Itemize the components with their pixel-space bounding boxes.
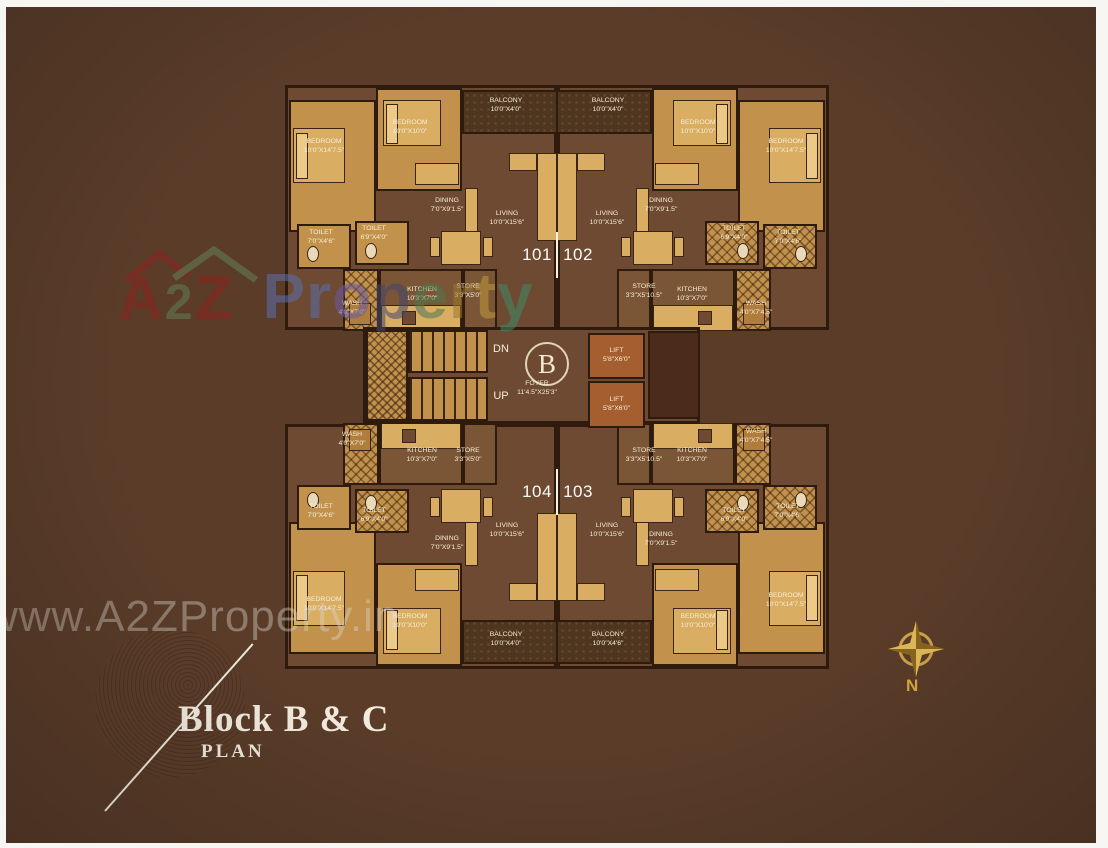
tv-unit-icon (465, 520, 478, 566)
page-border (1096, 0, 1108, 848)
lift-label: LIFT5'8"X6'0" (603, 396, 630, 414)
unit-number-102: 102 (563, 245, 593, 265)
pillow-icon (716, 104, 728, 144)
chair-icon (674, 237, 684, 257)
unit-number-104: 104 (522, 482, 552, 502)
stairs-down-label: DN (493, 343, 509, 355)
sofa-icon (537, 513, 557, 601)
room-label-balcony: BALCONY10'0"X4'0" (490, 631, 522, 649)
page-border (0, 0, 6, 848)
room-label-living: LIVING10'0"X15'6" (590, 210, 625, 228)
wardrobe-icon (655, 569, 699, 591)
dining-table-icon (633, 231, 673, 265)
wardrobe-icon (415, 163, 459, 185)
room-label-store: STORE3'3"X5'10.5" (626, 447, 663, 465)
stove-icon (698, 429, 712, 443)
room-label-toilet: TOILET6'9"X4'0" (360, 507, 387, 525)
room-label-kitchen: KITCHEN10'3"X7'0" (677, 286, 708, 304)
room-label-wash: WASH4'0"X7'4.5" (740, 428, 773, 446)
room-label-store: STORE3'3"X5'10.5" (626, 283, 663, 301)
room-label-living: LIVING10'0"X15'6" (590, 522, 625, 540)
room-label-dining: DINING7'0"X9'1.5" (431, 197, 464, 215)
entry-divider (556, 469, 558, 515)
room-label-balcony: BALCONY10'0"X4'6" (592, 631, 624, 649)
room-label-dining: DINING7'0"X9'1.5" (431, 535, 464, 553)
room-label-living: LIVING10'0"X15'6" (490, 522, 525, 540)
page-title: Block B & C (178, 698, 389, 741)
block-letter: B (538, 349, 556, 380)
room-label-toilet: TOILET7'0"X4'6" (307, 229, 334, 247)
page-border (0, 843, 1108, 848)
stove-icon (402, 429, 416, 443)
room-label-toilet: TOILET6'9"X4'0" (360, 225, 387, 243)
room-label-balcony: BALCONY10'0"X4'0" (592, 97, 624, 115)
chair-icon (483, 497, 493, 517)
lift-label: LIFT5'8"X6'0" (603, 347, 630, 365)
foyer-label: FOYER11'4.5"X25'3" (517, 380, 557, 398)
staircase-flight (408, 377, 488, 421)
site-url-watermark: www.A2ZProperty.in (0, 592, 399, 642)
room-label-bedroom: BEDROOM10'0"X10'0" (680, 613, 715, 631)
room-label-bedroom: BEDROOM10'0"X14'7.5" (304, 138, 344, 156)
a2zproperty-logo-watermark: A2Z Property (118, 246, 534, 330)
room-label-dining: DINING7'0"X9'1.5" (645, 197, 678, 215)
wardrobe-icon (655, 163, 699, 185)
chair-icon (674, 497, 684, 517)
room-label-toilet: TOILET6'9"X4'0" (720, 225, 747, 243)
chair-icon (430, 497, 440, 517)
room-label-bedroom: BEDROOM10'0"X14'7.5" (766, 138, 806, 156)
sofa-icon (509, 583, 537, 601)
duct-block (648, 331, 700, 419)
sofa-icon (537, 153, 557, 241)
sofa-icon (577, 583, 605, 601)
wardrobe-icon (415, 569, 459, 591)
room-label-store: STORE3'3"X5'0" (454, 447, 481, 465)
chair-icon (621, 237, 631, 257)
lift-shaft: LIFT5'8"X6'0" (588, 381, 645, 428)
sofa-icon (557, 513, 577, 601)
compass-icon (885, 618, 947, 680)
dining-table-icon (633, 489, 673, 523)
tv-unit-icon (465, 188, 478, 234)
page-subtitle: PLAN (201, 741, 265, 763)
pillow-icon (716, 610, 728, 650)
staircase-flight (408, 330, 488, 373)
room-label-wash: WASH4'0"X7'4.5" (740, 300, 773, 318)
chair-icon (621, 497, 631, 517)
kitchen-counter-icon (653, 423, 733, 449)
room-label-bedroom: BEDROOM10'0"X10'0" (392, 119, 427, 137)
logo-a2z-text: A2Z (118, 268, 234, 330)
stair-lobby-pattern (366, 330, 408, 421)
sofa-icon (577, 153, 605, 171)
lift-shaft: LIFT5'8"X6'0" (588, 333, 645, 379)
pillow-icon (806, 133, 818, 179)
floor-plan-page: LIFT5'8"X6'0" LIFT5'8"X6'0" B DN UP FOYE… (0, 0, 1108, 848)
room-label-dining: DINING7'0"X9'1.5" (645, 531, 678, 549)
pillow-icon (806, 575, 818, 621)
logo-property-text: Property (262, 264, 533, 328)
page-border (0, 0, 1108, 7)
room-label-kitchen: KITCHEN10'3"X7'0" (407, 447, 438, 465)
stairs-up-label: UP (493, 390, 508, 402)
room-label-toilet: TOILET7'0"X4'6" (774, 503, 801, 521)
room-label-bedroom: BEDROOM10'0"X14'7.5" (766, 592, 806, 610)
room-label-toilet: TOILET7'0"X4'6" (774, 229, 801, 247)
unit-number-103: 103 (563, 482, 593, 502)
room-label-wash: WASH4'0"X7'0" (338, 431, 365, 449)
room-label-toilet: TOILET6'9"X4'0" (720, 507, 747, 525)
room-label-bedroom: BEDROOM10'0"X10'0" (680, 119, 715, 137)
toilet-fixture-icon (795, 246, 807, 262)
room-label-toilet: TOILET7'0"X4'6" (307, 503, 334, 521)
room-label-living: LIVING10'0"X15'6" (490, 210, 525, 228)
entry-divider (556, 232, 558, 278)
dining-table-icon (441, 489, 481, 523)
north-label: N (906, 676, 918, 696)
kitchen-counter-icon (381, 423, 461, 449)
toilet-fixture-icon (737, 243, 749, 259)
sofa-icon (509, 153, 537, 171)
room-label-balcony: BALCONY10'0"X4'0" (490, 97, 522, 115)
room-label-kitchen: KITCHEN10'3"X7'0" (677, 447, 708, 465)
sofa-icon (557, 153, 577, 241)
stove-icon (698, 311, 712, 325)
